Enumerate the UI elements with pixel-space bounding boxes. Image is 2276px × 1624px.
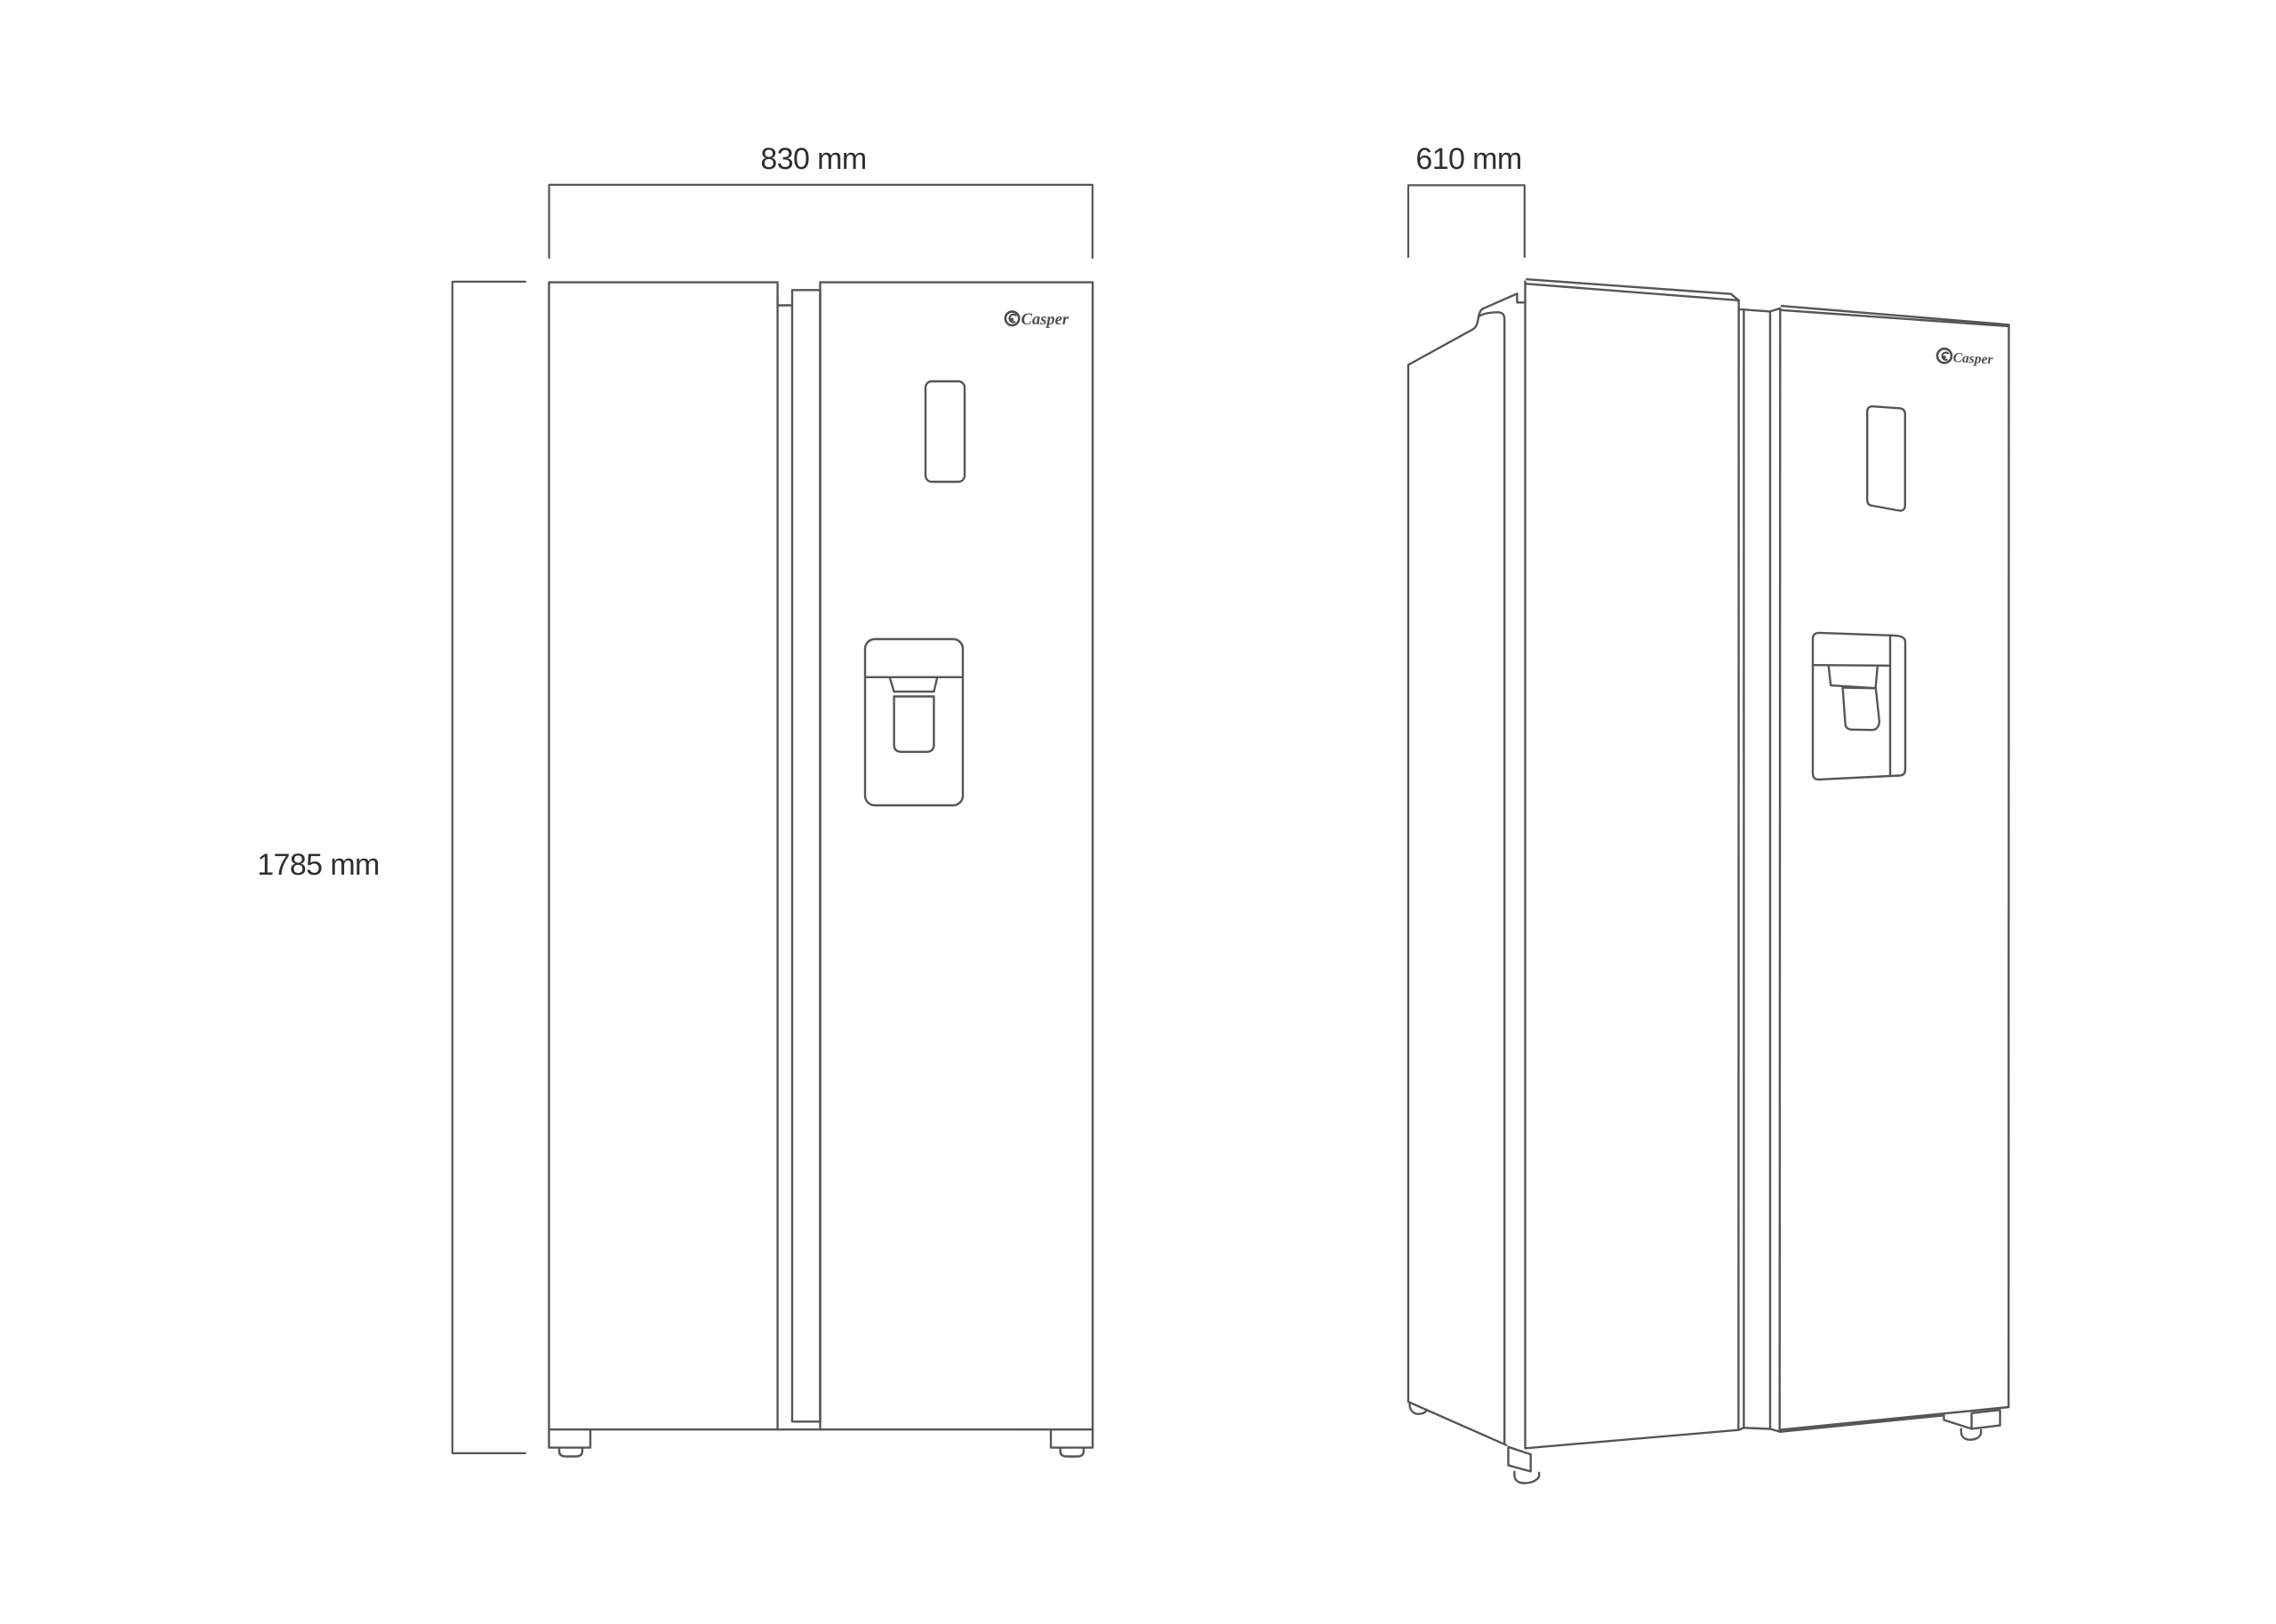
- svg-text:Casper: Casper: [1952, 350, 1994, 367]
- svg-text:610 mm: 610 mm: [1415, 142, 1521, 176]
- svg-text:Casper: Casper: [1021, 311, 1069, 329]
- svg-text:830 mm: 830 mm: [760, 142, 866, 176]
- svg-text:1785 mm: 1785 mm: [257, 848, 380, 882]
